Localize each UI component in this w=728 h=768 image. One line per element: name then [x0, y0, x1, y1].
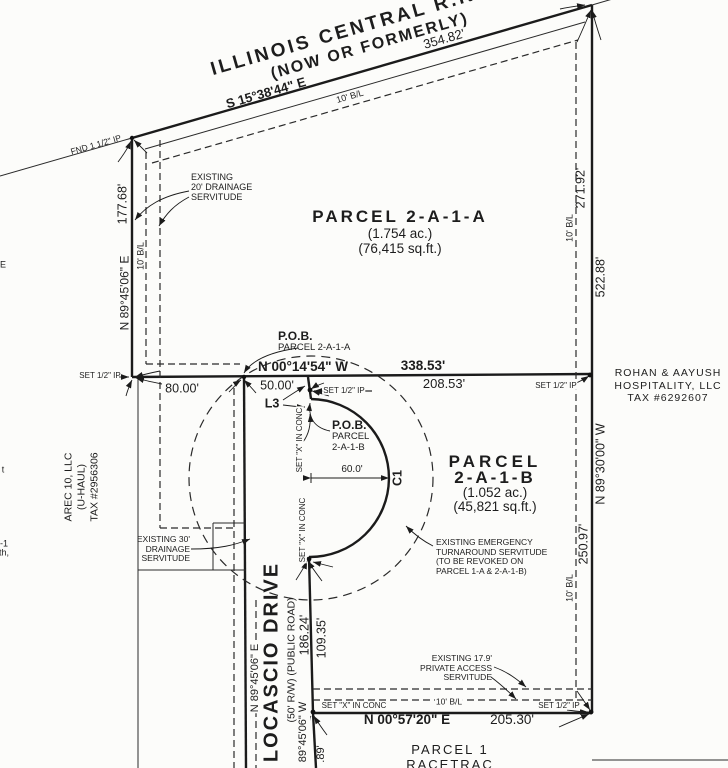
west-owner-line2: (U-HAUL) [75, 452, 88, 521]
road-south-dim-fragment: .89' [316, 745, 328, 762]
south-set-x-label: SET "X" IN CONC [321, 702, 388, 710]
edge-fragment-th: th, [0, 548, 9, 557]
parcel-a-acreage: (1.754 ac.) [368, 227, 433, 241]
road-subtitle: (50' R/W) (PUBLIC ROAD) [286, 597, 297, 722]
edge-fragment-e: E [0, 260, 6, 269]
east-dim-upper: 271.92' [574, 168, 587, 209]
drainage20-note: EXISTING 20' DRAINAGE SERVITUDE [191, 172, 252, 202]
parcel-b-pob-line1: P.O.B. [332, 419, 369, 432]
road-south-bearing: 89°45'06" W [298, 701, 310, 764]
drainage30-note: EXISTING 30' DRAINAGE SERVITUDE [137, 535, 190, 564]
parcel-a-pob-line2: PARCEL 2-A-1-A [278, 343, 350, 354]
parcel-b-pob-line3: 2-A-1-B [332, 443, 369, 454]
road-dim-lower: 109.35' [315, 618, 328, 659]
west-owner-line1: AREC 10, LLC [62, 452, 75, 521]
parcel-b-pob-note: P.O.B. PARCEL 2-A-1-B [332, 419, 369, 454]
east-building-line-lower-label: 10' B/L [565, 573, 574, 603]
east-owner-line3: TAX #6292607 [614, 392, 721, 405]
east-owner-note: ROHAN & AAYUSH HOSPITALITY, LLC TAX #629… [614, 367, 721, 405]
east-dim-lower: 250.97' [577, 524, 590, 565]
parcel-a-pob-note: P.O.B. PARCEL 2-A-1-A [278, 330, 350, 354]
division-bearing: N 00°14'54" W [258, 360, 348, 374]
west-dim-upper: 177.68' [116, 184, 129, 225]
south-building-line-label: 10' B/L [435, 698, 463, 707]
curve-c1-label: C1 [391, 470, 404, 486]
east-set-pin-label: SET 1/2" IP [534, 382, 577, 390]
building-lines [146, 40, 592, 768]
neighbor-line2: RACETRAC [390, 757, 510, 768]
turnaround-radius-dim: 60.0' [341, 465, 362, 476]
road-dim-total: 186.24' [298, 615, 311, 656]
survey-plat-page: ILLINOIS CENTRAL R.R. R/W (NOW OR FORMER… [0, 0, 728, 768]
division-dim-east: 208.53' [423, 377, 465, 391]
drainage20-line3: SERVITUDE [191, 192, 252, 202]
division-dim-west: 80.00' [165, 382, 199, 395]
drainage20-line2: 20' DRAINAGE [191, 182, 252, 192]
south-dim: 205.30' [490, 713, 534, 727]
access-line3: SERVITUDE [420, 673, 492, 683]
east-building-line-upper-label: 10' B/L [565, 213, 574, 243]
turnaround-line4: PARCEL 1-A & 2-A-1-B) [436, 567, 547, 577]
west-building-line-label: 10' B/L [136, 241, 145, 271]
set-x-upper-label: SET "X" IN CONC [296, 407, 304, 474]
access-servitude-note: EXISTING 17.9' PRIVATE ACCESS SERVITUDE [420, 654, 492, 683]
west-set-pin-label: SET 1/2" IP [79, 372, 120, 380]
east-owner-line1: ROHAN & AAYUSH [614, 367, 721, 380]
drainage30-line3: SERVITUDE [137, 554, 190, 564]
south-bearing: N 00°57'20" E [364, 713, 450, 727]
parcel-b-square-feet: (45,821 sq.ft.) [453, 500, 536, 514]
parcel-a-name: PARCEL 2-A-1-A [312, 208, 488, 226]
division-set-pin-label: SET 1/2" IP [322, 387, 365, 395]
road-west-bearing: N 89°45'06" E [250, 643, 262, 714]
parcel-a-pob-line1: P.O.B. [278, 330, 350, 343]
division-dim-road: 50.00' [260, 379, 294, 392]
east-bearing: N 89°30'00" W [594, 423, 607, 504]
division-dim-total: 338.53' [401, 359, 446, 373]
edge-fragment-t: t [2, 465, 5, 474]
east-dim-total: 522.88' [594, 257, 607, 298]
set-x-lower-label: SET "X" IN CONC [299, 497, 307, 564]
south-set-pin-label: SET 1/2" IP [537, 702, 580, 710]
west-owner-note: AREC 10, LLC (U-HAUL) TAX #2956306 [62, 452, 101, 521]
west-owner-line3: TAX #2956306 [89, 452, 102, 521]
parcel-a-square-feet: (76,415 sq.ft.) [358, 242, 441, 256]
drainage20-line1: EXISTING [191, 172, 252, 182]
road-name: LOCASCIO DRIVE [262, 562, 283, 762]
turnaround-note: EXISTING EMERGENCY TURNAROUND SERVITUDE … [436, 538, 547, 576]
east-owner-line2: HOSPITALITY, LLC [614, 380, 721, 393]
leader-lines [118, 5, 601, 736]
west-bearing: N 89°45'06" E [119, 256, 132, 331]
south-neighbor-note: PARCEL 1 RACETRAC PETROLEUM, INC. [390, 742, 510, 768]
line-l3-label: L3 [265, 397, 280, 410]
neighbor-line1: PARCEL 1 [390, 742, 510, 757]
